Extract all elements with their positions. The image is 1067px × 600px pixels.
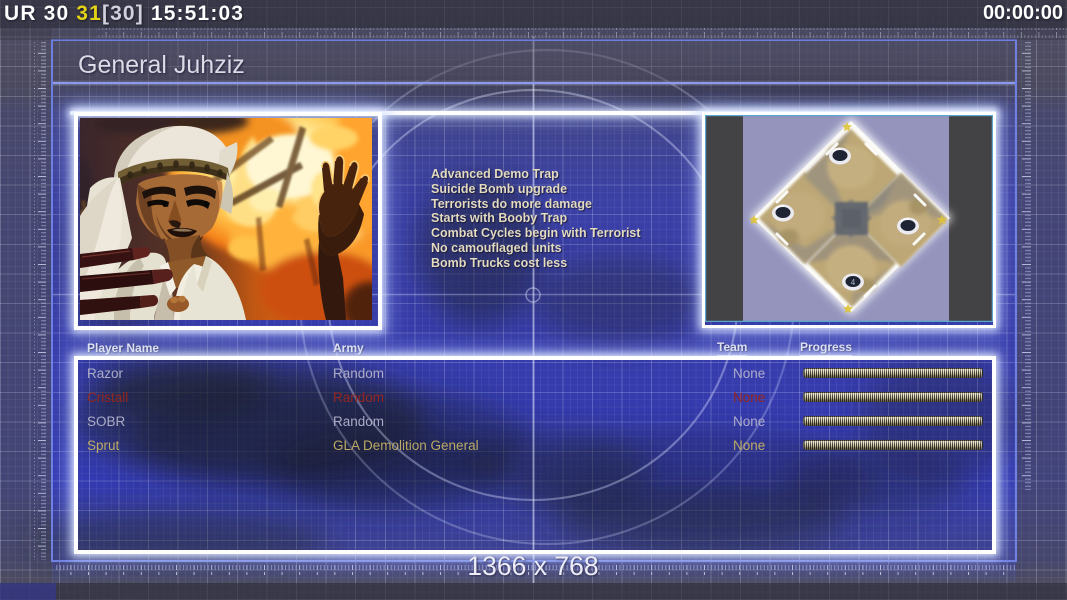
svg-text:4: 4 [851, 278, 856, 287]
